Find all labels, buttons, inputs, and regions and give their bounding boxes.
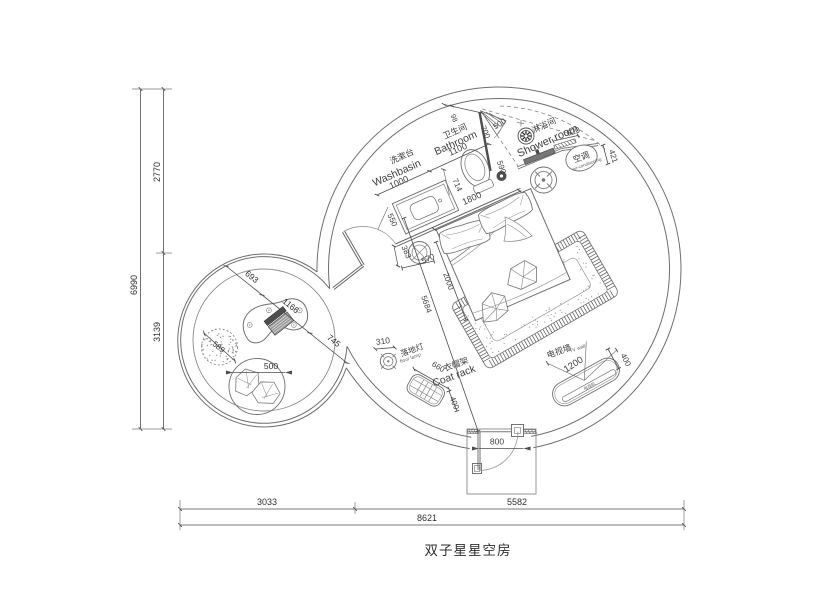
svg-text:800: 800 xyxy=(490,437,504,447)
svg-text:双子星星空房: 双子星星空房 xyxy=(425,543,512,558)
svg-text:5582: 5582 xyxy=(507,497,527,507)
svg-text:2770: 2770 xyxy=(152,162,162,182)
svg-text:6990: 6990 xyxy=(129,275,139,295)
svg-text:8621: 8621 xyxy=(417,513,437,523)
svg-text:3139: 3139 xyxy=(152,322,162,342)
svg-text:310: 310 xyxy=(375,335,391,347)
svg-text:500: 500 xyxy=(264,361,278,371)
svg-text:3033: 3033 xyxy=(257,497,277,507)
